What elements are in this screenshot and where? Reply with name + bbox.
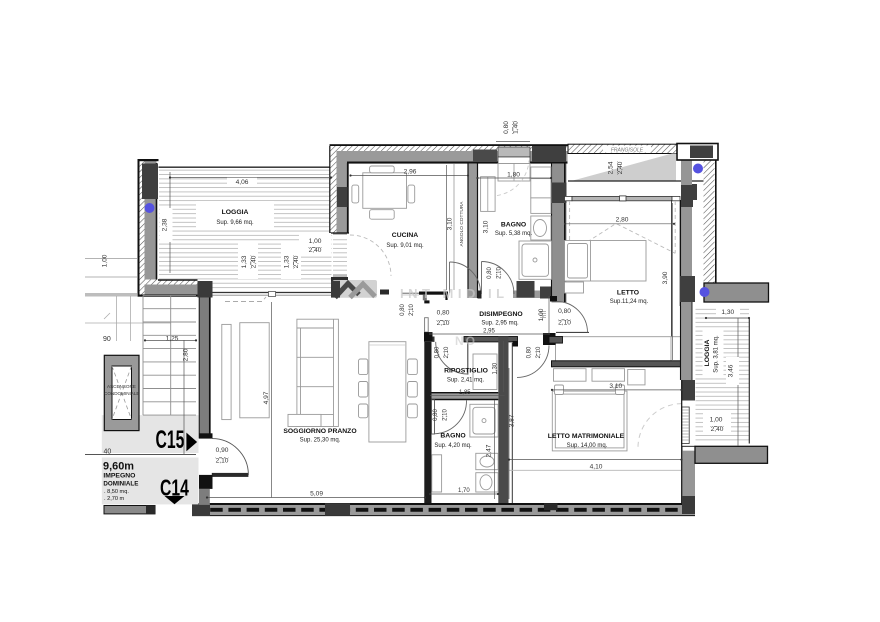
svg-text:Sup. 14,00 mq.: Sup. 14,00 mq. (567, 443, 608, 449)
svg-text:IMPEGNO: IMPEGNO (103, 473, 135, 480)
svg-text:2,10: 2,10 (497, 267, 503, 279)
svg-text:LOGGIA: LOGGIA (704, 340, 711, 367)
svg-text:1,30: 1,30 (493, 362, 499, 374)
svg-text:2,40: 2,40 (711, 426, 724, 433)
svg-text:. 2,70 m: . 2,70 m (104, 496, 125, 502)
svg-text:2,38: 2,38 (162, 218, 169, 231)
svg-text:1,33: 1,33 (284, 255, 291, 268)
svg-text:0,80: 0,80 (435, 346, 441, 358)
svg-text:3,10: 3,10 (483, 220, 490, 233)
svg-text:2,95: 2,95 (483, 329, 495, 335)
svg-text:SOGGIORNO PRANZO: SOGGIORNO PRANZO (283, 428, 356, 435)
svg-text:2,10: 2,10 (444, 346, 450, 358)
svg-text:INT MID IL: INT MID IL (400, 286, 509, 301)
svg-text:DISIMPEGNO: DISIMPEGNO (479, 311, 522, 318)
svg-text:2,10: 2,10 (409, 304, 415, 316)
svg-text:CONDOMINIALE: CONDOMINIALE (104, 391, 139, 396)
svg-text:2,96: 2,96 (404, 169, 417, 176)
svg-text:BAGNO: BAGNO (501, 222, 526, 229)
svg-text:2,10: 2,10 (437, 320, 450, 327)
svg-text:C15: C15 (156, 426, 185, 454)
svg-text:4,10: 4,10 (590, 464, 603, 471)
svg-text:0,80: 0,80 (433, 409, 439, 421)
svg-text:LETTO MATRIMONIALE: LETTO MATRIMONIALE (548, 433, 625, 440)
svg-text:2,80: 2,80 (183, 348, 190, 361)
svg-text:2,40: 2,40 (617, 161, 624, 174)
svg-text:Sup. 9,66 mq.: Sup. 9,66 mq. (216, 220, 254, 226)
svg-text:1,80: 1,80 (507, 172, 520, 179)
svg-text:Sup. 3,81 mq.: Sup. 3,81 mq. (714, 335, 720, 373)
svg-text:2,80: 2,80 (616, 217, 629, 224)
svg-text:. 8,50 mq.: . 8,50 mq. (104, 489, 129, 495)
svg-text:1,00: 1,00 (102, 254, 109, 267)
svg-text:2,40: 2,40 (251, 255, 258, 268)
svg-text:0,80: 0,80 (400, 304, 406, 316)
svg-text:2,40: 2,40 (293, 255, 300, 268)
svg-text:Sup. 2,95 mq.: Sup. 2,95 mq. (481, 321, 519, 327)
svg-text:3,10: 3,10 (447, 217, 454, 230)
svg-text:0,80: 0,80 (527, 346, 533, 358)
svg-text:90: 90 (103, 336, 111, 343)
svg-text:0,80: 0,80 (437, 310, 450, 317)
svg-text:1,00: 1,00 (538, 308, 545, 321)
svg-text:RIPOSTIGLIO: RIPOSTIGLIO (444, 368, 488, 375)
svg-text:LOGGIA: LOGGIA (222, 209, 249, 216)
svg-text:5,09: 5,09 (310, 491, 323, 498)
svg-text:CUCINA: CUCINA (392, 232, 419, 239)
svg-text:1,00: 1,00 (710, 417, 723, 424)
svg-text:BAGNO: BAGNO (440, 433, 465, 440)
svg-text:4,06: 4,06 (236, 179, 249, 186)
svg-text:1,70: 1,70 (458, 488, 470, 494)
svg-text:1,25: 1,25 (166, 336, 179, 343)
svg-text:Sup. 2,41 mq.: Sup. 2,41 mq. (447, 378, 485, 384)
svg-text:Sup. 9,01 mq.: Sup. 9,01 mq. (386, 243, 424, 249)
svg-text:9,60m: 9,60m (103, 461, 134, 473)
svg-text:0,80: 0,80 (487, 267, 493, 279)
svg-text:1,00: 1,00 (309, 238, 322, 245)
svg-text:1,40: 1,40 (513, 121, 520, 134)
svg-text:2,10: 2,10 (536, 346, 542, 358)
svg-text:2,10: 2,10 (216, 458, 229, 465)
svg-text:3,87: 3,87 (509, 414, 516, 427)
svg-text:ANGOLO COTTURA: ANGOLO COTTURA (459, 201, 465, 247)
svg-text:40: 40 (104, 448, 112, 455)
svg-text:Sup. 4,20 mq.: Sup. 4,20 mq. (434, 443, 472, 449)
svg-text:ASCENSORE: ASCENSORE (107, 384, 136, 389)
svg-text:LETTO: LETTO (617, 290, 639, 297)
svg-text:0,80: 0,80 (503, 121, 510, 134)
svg-text:NO: NO (455, 334, 477, 348)
svg-text:2,47: 2,47 (486, 444, 493, 457)
svg-text:0,90: 0,90 (216, 447, 229, 454)
svg-text:3,10: 3,10 (609, 383, 622, 390)
svg-text:3,90: 3,90 (662, 271, 669, 284)
svg-text:1,33: 1,33 (241, 255, 248, 268)
svg-text:FRANGISOLE: FRANGISOLE (611, 148, 644, 154)
svg-text:Sup. 5,38 mq.: Sup. 5,38 mq. (495, 231, 533, 237)
svg-text:2,10: 2,10 (558, 320, 571, 327)
svg-text:Sup.11,24 mq.: Sup.11,24 mq. (610, 299, 649, 305)
svg-text:2,54: 2,54 (608, 161, 615, 174)
svg-text:0,80: 0,80 (558, 308, 571, 315)
svg-text:DOMINIALE: DOMINIALE (103, 481, 139, 488)
svg-text:2,10: 2,10 (443, 409, 449, 421)
svg-text:Sup. 25,30 mq.: Sup. 25,30 mq. (300, 438, 341, 444)
svg-text:2,40: 2,40 (309, 247, 322, 254)
svg-text:1,85: 1,85 (459, 390, 471, 396)
svg-text:3,46: 3,46 (728, 364, 735, 377)
svg-text:4,97: 4,97 (263, 391, 270, 404)
svg-text:1,30: 1,30 (721, 309, 734, 316)
